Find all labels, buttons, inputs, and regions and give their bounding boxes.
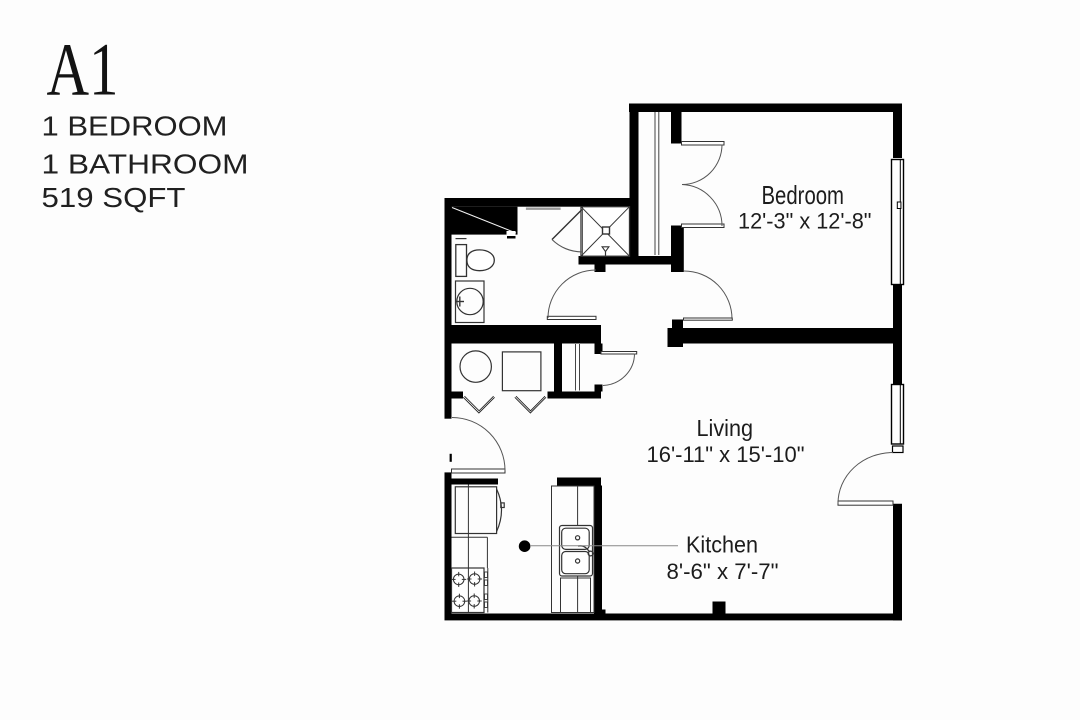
svg-text:Kitchen: Kitchen (686, 531, 758, 557)
svg-text:12'-3" x 12'-8": 12'-3" x 12'-8" (738, 208, 872, 233)
svg-text:Living: Living (697, 415, 754, 441)
svg-text:Bedroom: Bedroom (762, 180, 845, 210)
svg-text:519 SQFT: 519 SQFT (42, 182, 186, 213)
svg-text:8'-6" x 7'-7": 8'-6" x 7'-7" (667, 559, 779, 584)
svg-text:A1: A1 (47, 29, 119, 112)
svg-text:16'-11" x 15'-10": 16'-11" x 15'-10" (647, 442, 805, 467)
svg-text:1 BATHROOM: 1 BATHROOM (42, 149, 249, 180)
svg-text:1 BEDROOM: 1 BEDROOM (42, 110, 228, 141)
